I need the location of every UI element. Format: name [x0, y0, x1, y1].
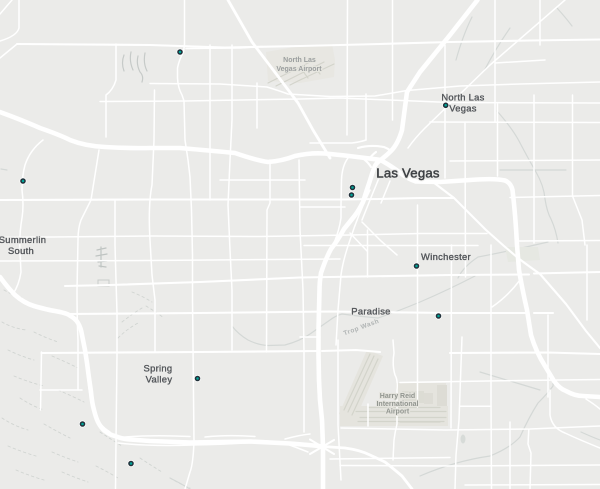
svg-text:Summerlin: Summerlin: [0, 234, 46, 245]
svg-text:Valley: Valley: [146, 374, 173, 385]
svg-text:Vegas: Vegas: [449, 103, 477, 114]
svg-text:Airport: Airport: [386, 409, 410, 416]
svg-text:Paradise: Paradise: [351, 306, 390, 317]
svg-text:North Las: North Las: [441, 92, 484, 103]
svg-text:Las Vegas: Las Vegas: [376, 166, 440, 181]
svg-text:Winchester: Winchester: [421, 251, 471, 262]
svg-text:Vegas Airport: Vegas Airport: [276, 66, 322, 73]
svg-text:Spring: Spring: [144, 363, 173, 374]
svg-text:International: International: [376, 401, 418, 408]
svg-text:Harry Reid: Harry Reid: [380, 393, 415, 400]
svg-text:North Las: North Las: [283, 57, 316, 64]
svg-text:South: South: [8, 245, 34, 256]
